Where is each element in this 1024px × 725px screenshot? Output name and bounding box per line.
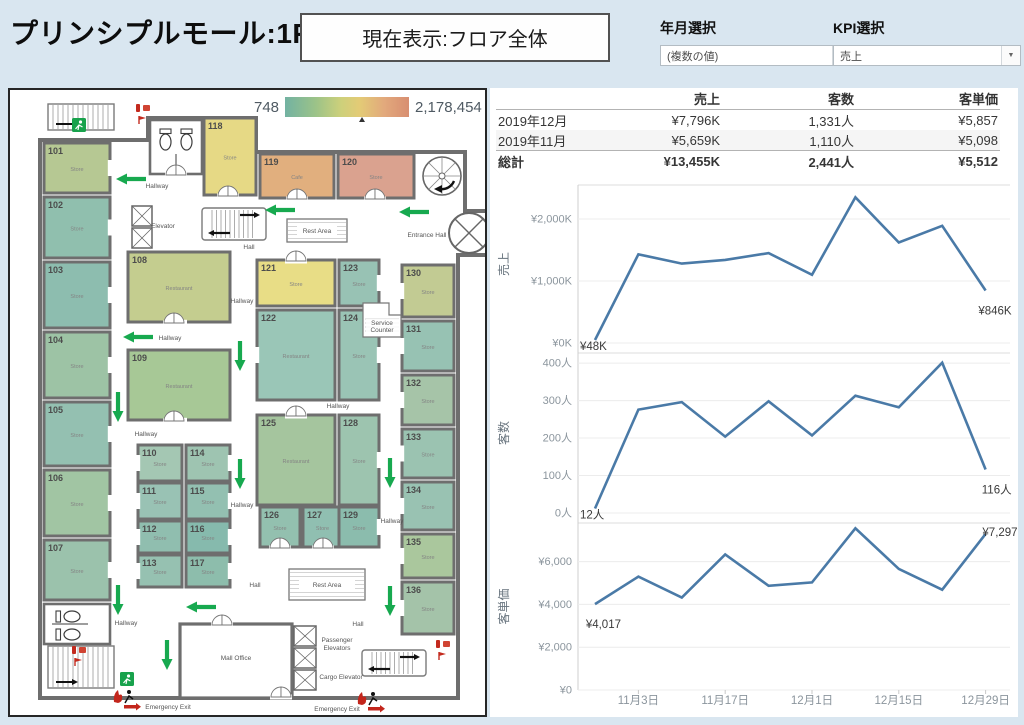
room-105[interactable]: 105Store [44, 402, 112, 466]
data-label: ¥846K [977, 306, 1012, 318]
service-counter-label: Counter [370, 327, 394, 334]
escalator-icon [362, 650, 426, 676]
data-label: 12人 [580, 509, 605, 522]
room-number: 103 [48, 265, 63, 275]
door-gap [400, 548, 405, 564]
room-type-label: Store [421, 345, 434, 351]
chevron-down-icon[interactable]: ▼ [1001, 46, 1020, 65]
room-type-label: Store [70, 364, 83, 370]
room-number: 130 [406, 268, 421, 278]
room-115[interactable]: 115Store [186, 483, 232, 519]
door-gap [108, 220, 113, 236]
room-type-label: Store [421, 505, 434, 511]
door-gap [377, 347, 382, 363]
table-cell: ¥13,455K [600, 151, 722, 172]
map-label: Mall Office [221, 655, 252, 662]
table-row[interactable]: 総計¥13,455K2,441人¥5,512 [496, 151, 1000, 172]
y-tick-label: ¥2,000K [530, 213, 573, 225]
rest-area-label: Rest Area [313, 582, 342, 589]
table-cell: ¥7,796K [600, 110, 722, 131]
door-gap [400, 498, 405, 514]
y-axis-title: 客数 [496, 421, 511, 445]
room-type-label: Store [201, 570, 214, 576]
door-gap [377, 275, 382, 291]
room-type-label: Restaurant [166, 384, 193, 390]
room-104[interactable]: 104Store [44, 332, 112, 398]
y-tick-label: ¥6,000 [537, 556, 572, 568]
room-133[interactable]: 133Store [400, 429, 454, 478]
door-gap [136, 529, 141, 545]
door-gap [255, 347, 260, 363]
y-tick-label: 300人 [543, 394, 572, 407]
room-122[interactable]: 122Restaurant [255, 310, 335, 400]
rotunda-icon [449, 213, 485, 253]
room-type-label: Store [153, 536, 166, 542]
map-label: Elevators [323, 645, 351, 652]
room-107[interactable]: 107Store [44, 540, 112, 600]
map-label: Hallway [231, 298, 255, 305]
room-number: 117 [190, 558, 205, 568]
room-type-label: Store [70, 167, 83, 173]
row-label: 2019年11月 [496, 130, 600, 151]
room-type-label: Store [352, 459, 365, 465]
map-label: Hall [243, 244, 255, 251]
x-tick-label: 11月17日 [701, 695, 749, 707]
y-tick-label: 100人 [543, 469, 572, 482]
room-type-label: Store [70, 294, 83, 300]
table-cell: ¥5,512 [856, 151, 1000, 172]
current-view-label: 現在表示:フロア全体 [362, 23, 548, 52]
room-number: 119 [264, 157, 279, 167]
legend-marker-icon [359, 117, 365, 122]
room-109[interactable]: 109Restaurant [128, 350, 230, 422]
room-type-label: Store [201, 500, 214, 506]
map-label: Emergency Exit [314, 706, 360, 713]
exitsign-icon [120, 672, 134, 686]
y-tick-label: 400人 [543, 357, 572, 370]
table-row[interactable]: 2019年11月¥5,659K1,110人¥5,098 [496, 130, 1000, 151]
y-tick-label: 0人 [555, 507, 572, 520]
room-131[interactable]: 131Store [400, 321, 454, 371]
table-header-row: 売上 客数 客単価 [496, 88, 1000, 110]
room-123[interactable]: 123Store [339, 260, 381, 306]
door-gap [400, 600, 405, 616]
room-type-label: Store [70, 227, 83, 233]
elevator-icon [294, 626, 316, 690]
y-tick-label: ¥0K [551, 338, 572, 350]
room-110[interactable]: 110Store [136, 445, 182, 481]
kpi-dropdown-value: 売上 [840, 48, 862, 64]
room-number: 127 [307, 510, 322, 520]
kpi-panel: 売上 客数 客単価 2019年12月¥7,796K1,331人¥5,857201… [490, 88, 1018, 717]
rest-area-label: Rest Area [303, 228, 332, 235]
room-134[interactable]: 134Store [400, 482, 454, 530]
y-tick-label: 200人 [543, 432, 572, 445]
service-counter-label: Service [371, 320, 393, 327]
floorplan-panel: 748 2,178,454 101Store102Store103Store10… [8, 88, 487, 717]
room-number: 115 [190, 486, 205, 496]
room-106[interactable]: 106Store [44, 470, 112, 536]
room-type-label: Store [352, 354, 365, 360]
y-tick-label: ¥1,000K [530, 275, 573, 287]
door-gap [108, 562, 113, 578]
room-number: 135 [406, 537, 421, 547]
y-axis-title: 売上 [496, 252, 511, 276]
map-label: Hall [249, 582, 261, 589]
door-gap [136, 493, 141, 509]
map-label: Passenger [321, 637, 353, 644]
x-tick-label: 11月3日 [618, 695, 659, 707]
room-129[interactable]: 129Store [339, 507, 381, 547]
room-132[interactable]: 132Store [400, 375, 454, 425]
room-type-label: Store [421, 399, 434, 405]
map-label: Hallway [381, 518, 405, 525]
table-cell: ¥5,659K [600, 130, 722, 151]
y-axis-title: 客単価 [496, 588, 511, 624]
map-label: Hallway [231, 502, 255, 509]
legend-max-value: 2,178,454 [415, 99, 482, 116]
room-number: 131 [406, 324, 421, 334]
door-gap [136, 455, 141, 471]
table-cell: 1,331人 [722, 110, 856, 131]
chart-客数: 0人100人200人300人400人客数12人116人 [496, 357, 1012, 522]
chart-客単価: ¥0¥2,000¥4,000¥6,000客単価¥4,017¥7,297 [496, 527, 1018, 697]
room-type-label: Store [289, 282, 302, 288]
door-gap [108, 426, 113, 442]
map-label: Elevator [151, 223, 176, 230]
room-number: 101 [48, 146, 63, 156]
kpi-charts: ¥0K¥1,000K¥2,000K売上¥48K¥846K0人100人200人30… [490, 180, 1018, 717]
wc-icon [44, 604, 110, 644]
room-type-label: Store [153, 570, 166, 576]
room-type-label: Store [273, 526, 286, 532]
table-header-empty [496, 88, 600, 110]
room-number: 118 [208, 121, 223, 131]
room-type-label: Store [70, 502, 83, 508]
room-number: 129 [343, 510, 358, 520]
room-number: 110 [142, 448, 157, 458]
kpi-dropdown[interactable]: 売上 ▼ [833, 45, 1021, 66]
rest-icon: Rest Area [289, 569, 365, 600]
map-label: Hallway [135, 431, 159, 438]
room-number: 105 [48, 405, 63, 415]
room-type-label: Store [201, 536, 214, 542]
escalator-icon [202, 208, 266, 240]
room-type-label: Restaurant [166, 286, 193, 292]
room-type-label: Store [70, 433, 83, 439]
door-gap [108, 287, 113, 303]
room-number: 120 [342, 157, 357, 167]
room-number: 132 [406, 378, 421, 388]
table-cell: 1,110人 [722, 130, 856, 151]
room-number: 116 [190, 524, 205, 534]
map-label: Cargo Elevator [319, 674, 363, 681]
legend-min-value: 748 [254, 99, 279, 116]
room-type-label: Store [421, 453, 434, 459]
row-label: 総計 [496, 151, 600, 172]
data-label: ¥7,297 [981, 527, 1017, 539]
door-gap [228, 563, 233, 579]
room-103[interactable]: 103Store [44, 262, 112, 328]
room-113[interactable]: 113Store [136, 555, 182, 587]
room-number: 124 [343, 313, 358, 323]
x-tick-label: 12月29日 [961, 695, 1010, 707]
room-number: 114 [190, 448, 205, 458]
data-label: ¥4,017 [585, 619, 621, 631]
room-number: 126 [264, 510, 279, 520]
door-gap [400, 283, 405, 299]
room-type-label: Restaurant [283, 354, 310, 360]
room-121[interactable]: 121Store [257, 258, 335, 306]
room-number: 112 [142, 524, 157, 534]
kpi-summary-table: 売上 客数 客単価 2019年12月¥7,796K1,331人¥5,857201… [496, 88, 1000, 171]
map-label: Hall [352, 621, 364, 628]
data-label: 116人 [982, 484, 1012, 497]
map-label: Hallway [159, 335, 183, 342]
room-125[interactable]: 125Restaurant [257, 413, 335, 505]
table-header-unit-price: 客単価 [856, 88, 1000, 110]
room-128[interactable]: 128Store [339, 415, 381, 505]
table-header-customers: 客数 [722, 88, 856, 110]
room-type-label: Store [153, 462, 166, 468]
room-number: 111 [142, 486, 156, 496]
room-114[interactable]: 114Store [186, 445, 232, 481]
room-number: 121 [261, 263, 276, 273]
room-type-label: Store [421, 607, 434, 613]
room-102[interactable]: 102Store [44, 197, 112, 258]
door-gap [228, 529, 233, 545]
x-tick-label: 12月15日 [875, 695, 924, 707]
room-type-label: Store [316, 526, 329, 532]
y-tick-label: ¥0 [559, 685, 572, 697]
table-row[interactable]: 2019年12月¥7,796K1,331人¥5,857 [496, 110, 1000, 131]
room-130[interactable]: 130Store [400, 265, 454, 317]
room-type-label: Store [153, 500, 166, 506]
door-gap [400, 338, 405, 354]
room-number: 102 [48, 200, 63, 210]
table-cell: 2,441人 [722, 151, 856, 172]
line-series[interactable] [595, 363, 986, 509]
year-month-dropdown[interactable]: (複数の値) ▼ [660, 45, 852, 66]
door-gap [400, 392, 405, 408]
line-series[interactable] [595, 528, 986, 604]
room-type-label: Restaurant [283, 459, 310, 465]
room-117[interactable]: 117Store [186, 555, 232, 587]
y-tick-label: ¥2,000 [537, 642, 572, 654]
color-legend: 748 2,178,454 [254, 94, 482, 120]
door-gap [136, 563, 141, 579]
map-label: Hallway [115, 620, 139, 627]
map-label: Entrance Hall [407, 232, 447, 239]
chart-売上: ¥0K¥1,000K¥2,000K売上¥48K¥846K [496, 197, 1012, 353]
table-cell: ¥5,098 [856, 130, 1000, 151]
room-118[interactable]: 118Store [204, 118, 256, 197]
map-label: Emergency Exit [145, 704, 191, 711]
map-label: Hallway [327, 403, 351, 410]
x-tick-label: 12月1日 [791, 695, 833, 707]
map-label: Hallway [146, 183, 170, 190]
room-number: 136 [406, 585, 421, 595]
room-type-label: Store [201, 462, 214, 468]
room-type-label: Store [352, 526, 365, 532]
room-135[interactable]: 135Store [400, 534, 454, 578]
room-number: 107 [48, 543, 63, 553]
room-number: 113 [142, 558, 157, 568]
room-number: 122 [261, 313, 276, 323]
door-gap [108, 495, 113, 511]
room-136[interactable]: 136Store [400, 582, 454, 634]
room-type-label: Store [421, 290, 434, 296]
room-type-label: Cafe [291, 175, 303, 181]
room-number: 106 [48, 473, 63, 483]
data-label: ¥48K [579, 341, 607, 353]
room-108[interactable]: 108Restaurant [128, 252, 230, 324]
current-view-indicator: 現在表示:フロア全体 [300, 13, 610, 62]
page-title: プリンシプルモール:1F [10, 12, 310, 52]
door-gap [400, 446, 405, 462]
room-116[interactable]: 116Store [186, 521, 232, 553]
room-101[interactable]: 101Store [44, 143, 112, 193]
room-type-label: Store [352, 282, 365, 288]
door-gap [108, 160, 113, 176]
filter-year-month: 年月選択 (複数の値) ▼ [660, 18, 852, 66]
room-type-label: Store [70, 569, 83, 575]
door-gap [377, 452, 382, 468]
room-number: 128 [343, 418, 358, 428]
room-number: 123 [343, 263, 358, 273]
rest-icon: Rest Area [287, 219, 347, 242]
exitsign-icon [72, 118, 86, 132]
room-type-label: Store [421, 555, 434, 561]
row-label: 2019年12月 [496, 110, 600, 131]
room-type-label: Store [223, 156, 236, 162]
room-number: 104 [48, 335, 63, 345]
room-number: 109 [132, 353, 147, 363]
year-month-dropdown-value: (複数の値) [667, 48, 718, 64]
room-type-label: Store [369, 175, 382, 181]
y-tick-label: ¥4,000 [537, 599, 572, 611]
year-month-filter-label: 年月選択 [660, 18, 852, 38]
room-111[interactable]: 111Store [136, 483, 182, 519]
table-cell: ¥5,857 [856, 110, 1000, 131]
filter-kpi: KPI選択 売上 ▼ [833, 18, 1021, 66]
table-header-sales: 売上 [600, 88, 722, 110]
room-112[interactable]: 112Store [136, 521, 182, 553]
door-gap [108, 357, 113, 373]
spiral-icon [423, 157, 461, 195]
legend-gradient-bar[interactable] [285, 97, 409, 117]
floorplan-svg: 101Store102Store103Store104Store105Store… [10, 90, 485, 715]
room-number: 133 [406, 432, 421, 442]
room-number: 134 [406, 485, 421, 495]
room-number: 108 [132, 255, 147, 265]
room-number: 125 [261, 418, 276, 428]
kpi-filter-label: KPI選択 [833, 18, 1021, 38]
door-gap [228, 455, 233, 471]
